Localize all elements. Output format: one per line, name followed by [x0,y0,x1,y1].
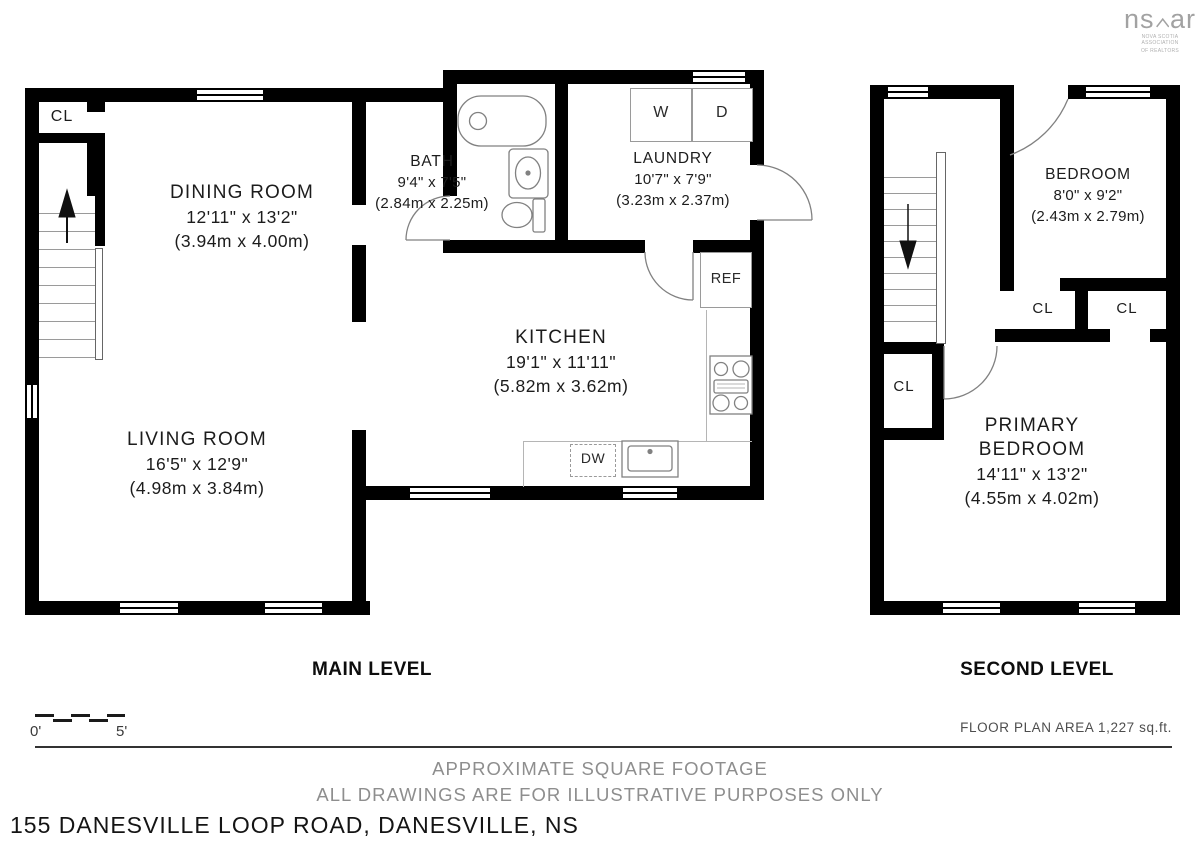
scale-five-label: 5' [116,723,127,740]
window [623,486,677,500]
room-label-kitchen: KITCHEN 19'1" x 11'11" (5.82m x 3.62m) [494,326,629,398]
wall [1068,85,1086,99]
stove [710,356,752,414]
bath-sink-faucet [525,170,530,175]
wall [1150,329,1166,342]
wall [1000,99,1014,291]
bath-sink [509,149,548,198]
wall [750,220,764,500]
room-dim-ft: 14'11" x 13'2" [965,462,1100,486]
wall [490,486,623,500]
room-dim-ft: 12'11" x 13'2" [170,205,314,229]
bathtub [458,96,546,146]
room-dim-m: (3.23m x 2.37m) [616,190,730,211]
wall [352,430,366,601]
room-label-primary-bedroom: PRIMARY BEDROOM 14'11" x 13'2" (4.55m x … [965,414,1100,510]
room-dim-m: (4.98m x 3.84m) [127,476,267,500]
nsar-logo: ns ar NOVA SCOTIA ASSOCIATION OF REALTOR… [1124,6,1196,54]
room-dim-m: (5.82m x 3.62m) [494,374,629,398]
floor-plan-page: CL DINING ROOM 12'11" x 13'2" (3.94m x 4… [0,0,1200,848]
stairs-second [884,162,936,336]
room-name: PRIMARY BEDROOM [970,414,1095,462]
wall [352,245,366,322]
main-level-title: MAIN LEVEL [312,659,432,681]
kitchen-sink-faucet [647,449,652,454]
window [265,601,322,615]
wall [352,88,366,205]
wall [1135,601,1166,615]
wall [1150,85,1166,99]
closet-label-main: CL [51,108,73,126]
second-level-title: SECOND LEVEL [960,659,1114,681]
washer-label: W [653,104,669,122]
scale-segment [89,719,108,722]
room-dim-ft: 19'1" x 11'11" [494,350,629,374]
wall [555,84,568,240]
toilet-tank [533,199,545,232]
room-name: BEDROOM [1031,164,1145,185]
dishwasher-label: DW [581,450,605,466]
scale-zero-label: 0' [30,723,41,740]
room-name: BATH [375,151,489,172]
disclaimer-line-2: ALL DRAWINGS ARE FOR ILLUSTRATIVE PURPOS… [0,784,1200,806]
toilet-bowl [502,203,532,228]
floor-plan-area-note: FLOOR PLAN AREA 1,227 sq.ft. [960,720,1172,735]
window [888,85,928,99]
room-dim-ft: 9'4" x 7'5" [375,172,489,193]
wall [1060,278,1166,291]
laundry-exterior-door-arc [757,165,812,220]
room-name: LAUNDRY [616,148,730,169]
wall [35,133,87,143]
wall [870,601,943,615]
wall [178,601,265,615]
scale-segment [35,714,54,717]
logo-tagline-2: OF REALTORS [1124,48,1196,54]
bedroom-door-arc [1010,99,1068,155]
room-dim-ft: 10'7" x 7'9" [616,169,730,190]
counter-edge [706,310,707,441]
wall [25,418,39,615]
room-name: LIVING ROOM [127,428,267,452]
footer-divider-line [35,746,1172,748]
room-label-bedroom: BEDROOM 8'0" x 9'2" (2.43m x 2.79m) [1031,164,1145,227]
house-roof-icon [1156,15,1169,30]
property-address: 155 DANESVILLE LOOP ROAD, DANESVILLE, NS [10,812,579,839]
wall [25,88,197,102]
wall [443,240,645,253]
window [943,601,1000,615]
room-dim-m: (4.55m x 4.02m) [965,486,1100,510]
laundry-door-arc [645,252,693,300]
stove-burner [713,395,729,411]
scale-segment [107,714,125,717]
scale-bar [35,714,125,723]
room-label-bath: BATH 9'4" x 7'5" (2.84m x 2.25m) [375,151,489,214]
closet-label-bedroom: CL [1032,300,1053,317]
wall [870,85,884,615]
counter-edge [523,441,752,442]
window [1086,85,1150,99]
stairs-main [39,196,95,359]
primary-bedroom-door-arc [944,346,997,399]
stove-element [714,380,748,393]
room-label-dining: DINING ROOM 12'11" x 13'2" (3.94m x 4.00… [170,181,314,253]
logo-text-left: ns [1124,6,1155,32]
wall [322,601,370,615]
wall [677,486,764,500]
wall [932,342,944,440]
wall [928,85,1014,99]
room-dim-m: (3.94m x 4.00m) [170,229,314,253]
wall [1075,291,1088,329]
bath-sink-basin [516,157,541,189]
stair-railing [95,248,103,360]
wall [443,70,693,84]
room-dim-ft: 8'0" x 9'2" [1031,185,1145,206]
closet-label-primary: CL [1116,300,1137,317]
wall [884,428,942,440]
room-name: DINING ROOM [170,181,314,205]
wall [1000,601,1079,615]
wall [995,329,1110,342]
window [120,601,178,615]
kitchen-sink [622,441,678,477]
stove-burner [733,361,749,377]
scale-segment [71,714,90,717]
disclaimer-line-1: APPROXIMATE SQUARE FOOTAGE [0,758,1200,780]
logo-text-right: ar [1170,6,1196,32]
nsar-logo-brand: ns ar [1124,6,1196,32]
wall [870,85,888,99]
window [1079,601,1135,615]
room-label-laundry: LAUNDRY 10'7" x 7'9" (3.23m x 2.37m) [616,148,730,211]
closet-label-hall: CL [893,378,914,395]
counter-edge [523,441,524,487]
room-dim-ft: 16'5" x 12'9" [127,452,267,476]
dryer-label: D [716,104,728,122]
bathtub-drain [470,113,487,130]
fridge-label: REF [711,271,742,287]
logo-tagline-1: NOVA SCOTIA ASSOCIATION [1124,34,1196,46]
room-dim-m: (2.43m x 2.79m) [1031,206,1145,227]
window [197,88,263,102]
stove-burner [715,363,728,376]
window [410,486,490,500]
room-dim-m: (2.84m x 2.25m) [375,193,489,214]
scale-segment [53,719,72,722]
wall [25,601,120,615]
stair-railing [936,152,946,344]
wall [87,102,105,112]
kitchen-sink-basin [628,446,672,471]
room-label-living: LIVING ROOM 16'5" x 12'9" (4.98m x 3.84m… [127,428,267,500]
window [25,385,39,418]
window [693,70,745,84]
stove-burner [735,397,748,410]
room-name: KITCHEN [494,326,629,350]
wall [1166,85,1180,615]
